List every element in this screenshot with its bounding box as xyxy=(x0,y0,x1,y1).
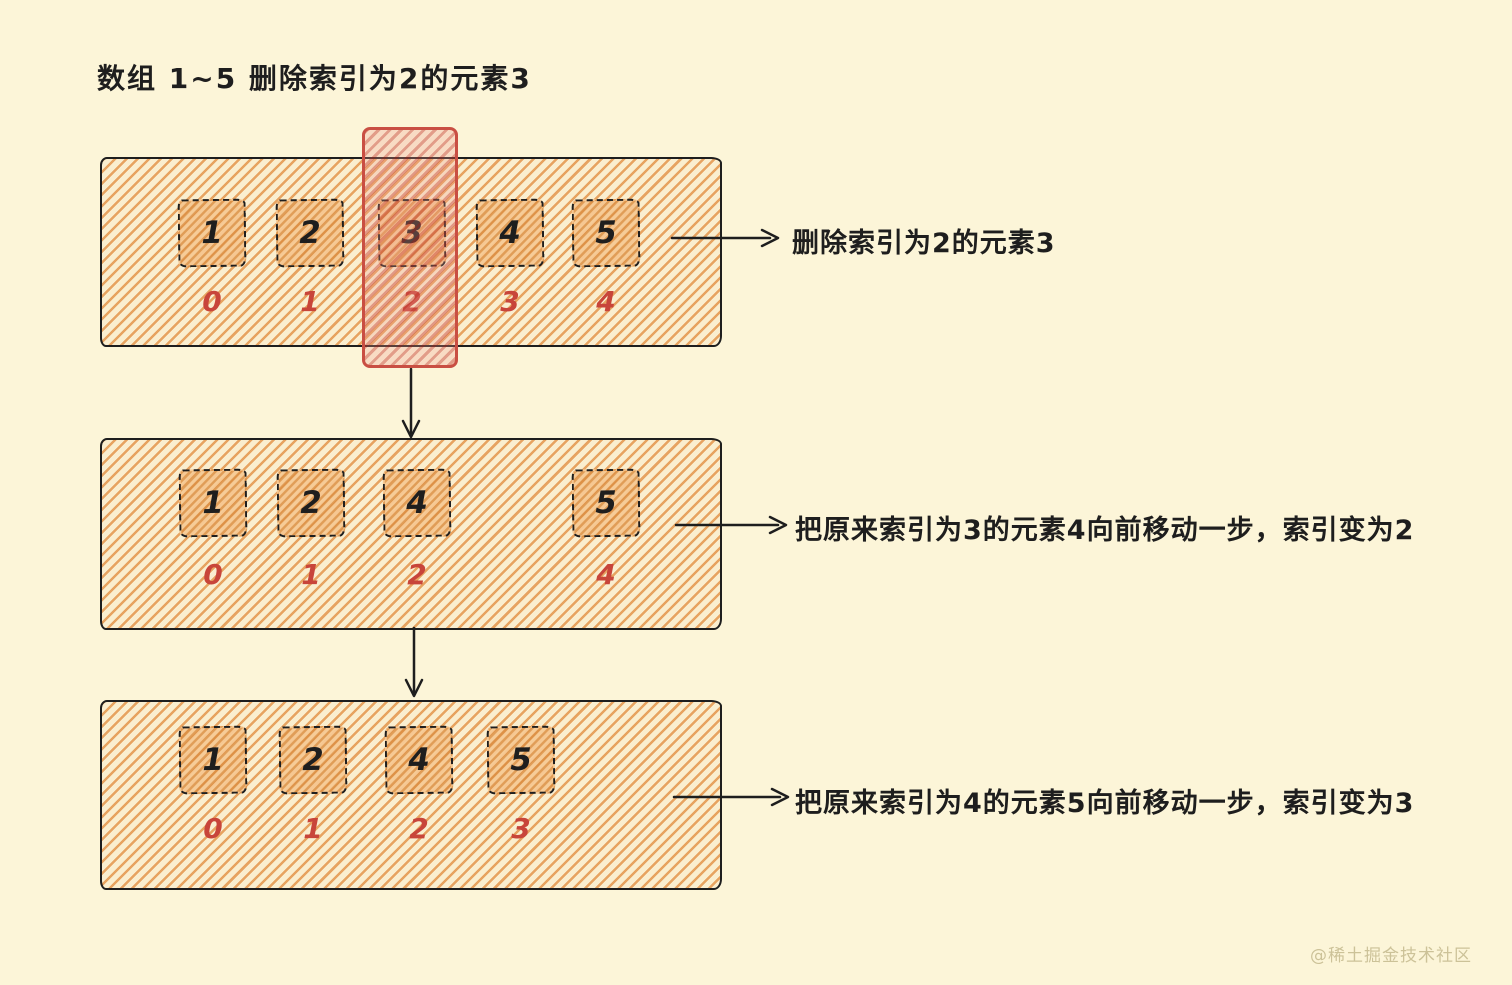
arrow-down-icon xyxy=(399,369,423,441)
array-cell-value: 2 xyxy=(277,469,346,538)
array-cell-value: 5 xyxy=(487,726,556,795)
array-cell-value: 4 xyxy=(383,469,452,538)
delete-highlight-band xyxy=(362,127,458,368)
array-cell-value: 2 xyxy=(279,726,348,795)
array-cell-index: 0 xyxy=(179,558,247,591)
array-cell-index: 2 xyxy=(383,558,451,591)
array-cell-index: 4 xyxy=(572,285,640,318)
array-cell-value: 1 xyxy=(179,469,248,538)
watermark: @稀土掘金技术社区 xyxy=(1310,941,1472,966)
array-cell-index: 1 xyxy=(279,812,347,845)
diagram-canvas: 数组 1~5 删除索引为2的元素3 1021324354 10214254 10… xyxy=(0,0,1512,985)
array-step-3: 10214253 xyxy=(100,700,722,890)
diagram-title: 数组 1~5 删除索引为2的元素3 xyxy=(97,57,532,97)
array-cell-value: 5 xyxy=(572,199,641,268)
array-cell-index: 1 xyxy=(277,558,345,591)
array-cell-index: 2 xyxy=(385,812,453,845)
array-cell-value: 5 xyxy=(572,469,641,538)
array-cell-index: 0 xyxy=(178,285,246,318)
array-cell-index: 4 xyxy=(572,558,640,591)
array-cell-value: 1 xyxy=(179,726,248,795)
step-3-label: 把原来索引为4的元素5向前移动一步，索引变为3 xyxy=(795,781,1414,820)
array-cell-value: 4 xyxy=(385,726,454,795)
array-cell-index: 3 xyxy=(487,812,555,845)
array-cell-value: 1 xyxy=(178,199,247,268)
arrow-right-icon xyxy=(674,785,794,809)
array-cell-value: 2 xyxy=(276,199,345,268)
array-cell-index: 0 xyxy=(179,812,247,845)
step-1-label: 删除索引为2的元素3 xyxy=(792,221,1056,260)
array-cell-index: 3 xyxy=(476,285,544,318)
arrow-right-icon xyxy=(676,513,792,537)
array-cell-value: 4 xyxy=(476,199,545,268)
arrow-down-icon xyxy=(402,628,426,700)
arrow-right-icon xyxy=(672,226,784,250)
array-step-2: 10214254 xyxy=(100,438,722,630)
step-2-label: 把原来索引为3的元素4向前移动一步，索引变为2 xyxy=(795,508,1414,547)
array-cell-index: 1 xyxy=(276,285,344,318)
